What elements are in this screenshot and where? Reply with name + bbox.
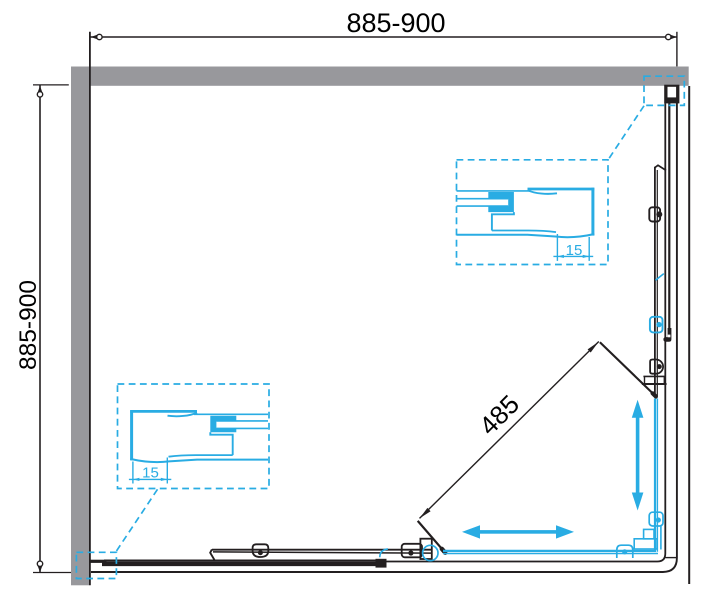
svg-text:885-900: 885-900 [346, 8, 445, 38]
svg-text:885-900: 885-900 [15, 280, 42, 370]
svg-text:15: 15 [566, 242, 583, 259]
svg-text:15: 15 [142, 464, 159, 481]
